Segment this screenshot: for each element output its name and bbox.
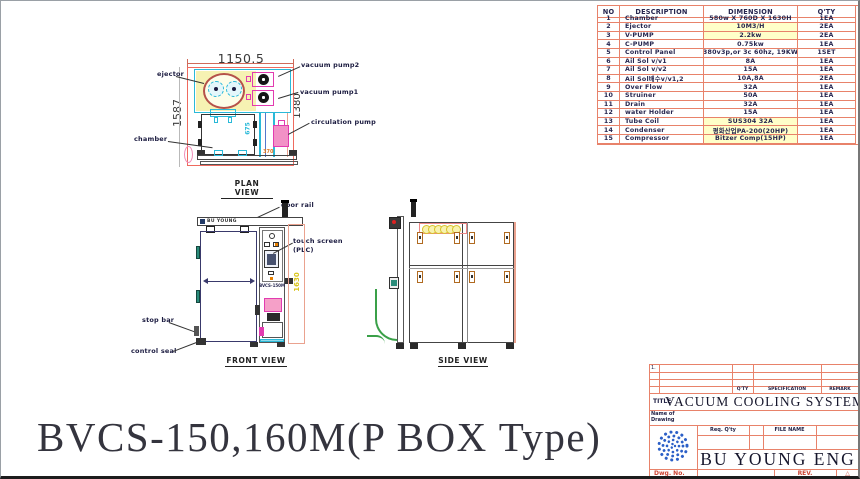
- cell-dimension: 8A: [704, 58, 798, 67]
- beacon-cap: [410, 199, 417, 202]
- pump-port: [246, 94, 251, 100]
- stop-bar-hardware: [194, 326, 199, 336]
- dim-tick: [187, 59, 188, 67]
- drawing-main-title: BVCS-150,160M(P BOX Type): [37, 413, 601, 461]
- cell-dimension: 32A: [704, 83, 798, 92]
- plan-dim-rail-label: 370: [263, 149, 273, 155]
- cell-no: 11: [598, 101, 620, 110]
- foot: [250, 342, 258, 347]
- cell-qty: 1EA: [798, 101, 856, 110]
- foot: [396, 343, 404, 349]
- grid-line: [659, 364, 660, 393]
- cell-dimension: 15A: [704, 109, 798, 118]
- panel-divider-h: [409, 268, 514, 269]
- cell-description: Ail Sol v/v1: [620, 58, 704, 67]
- cell-no: 8: [598, 75, 620, 84]
- cell-qty: 1EA: [798, 109, 856, 118]
- plan-dim-left-label: 1587: [171, 93, 183, 133]
- panel-hinge: [504, 232, 510, 244]
- plan-dim-inner-label: 675: [245, 119, 254, 139]
- junction-lamp: [392, 220, 396, 224]
- door-carriage: [214, 150, 223, 156]
- company-name: BU YOUNG ENG: [699, 449, 857, 470]
- cell-qty: 2EA: [798, 32, 856, 41]
- cell-description: water Holder: [620, 109, 704, 118]
- drain-hose: [375, 289, 397, 341]
- panel-hinge: [454, 271, 460, 283]
- label-control-seal: control seal: [131, 347, 177, 355]
- file-name-header: FILE NAME: [763, 427, 816, 433]
- cell-qty: 1EA: [798, 66, 856, 75]
- pipe-line: [259, 113, 261, 157]
- cell-qty: 1EA: [798, 126, 856, 135]
- dwg-no-label: Dwg. No.: [654, 470, 685, 477]
- switch-lamp: [275, 243, 278, 246]
- cell-no: 7: [598, 66, 620, 75]
- beacon-cap: [281, 200, 289, 203]
- cell-description: V-PUMP: [620, 32, 704, 41]
- arrow-head-left: [203, 278, 208, 284]
- pilot-lamp: [269, 233, 275, 239]
- cell-qty: 1EA: [798, 92, 856, 101]
- pole-connector-valve: [391, 280, 397, 286]
- spec-item-no: 1.: [651, 365, 656, 371]
- cell-dimension: 0.75kw: [704, 40, 798, 49]
- rotor-hub: [214, 87, 218, 91]
- leader-line: [169, 322, 195, 332]
- pump-stand: [262, 322, 283, 338]
- cell-description: Condenser: [620, 126, 704, 135]
- hose-loop: [184, 146, 193, 163]
- cell-qty: 1EA: [798, 135, 856, 144]
- cell-qty: 1EA: [798, 118, 856, 127]
- cell-description: Ail Sol v/v2: [620, 66, 704, 75]
- req-qty-header: Req. Q'ty: [697, 427, 749, 433]
- chamber-door: [200, 231, 257, 342]
- panel-hinge: [454, 232, 460, 244]
- panel-hinge: [417, 271, 423, 283]
- pump-base: [267, 313, 280, 321]
- cell-no: 13: [598, 118, 620, 127]
- vacuum-pump2-rotor: [258, 74, 269, 85]
- model-text: BVCS-150M: [257, 283, 287, 288]
- rev-label: REV.: [774, 470, 836, 477]
- cell-no: 15: [598, 135, 620, 144]
- warning-triangle-icon: △: [836, 470, 859, 477]
- cell-description: C-PUMP: [620, 40, 704, 49]
- cell-description: Compressor: [620, 135, 704, 144]
- cell-qty: 2EA: [798, 75, 856, 84]
- cell-no: 5: [598, 49, 620, 58]
- arrow-head-right: [250, 278, 255, 284]
- door-slide-arrow: [207, 281, 251, 282]
- plan-view-caption: PLAN VIEW: [221, 179, 273, 199]
- chamber-hinge: [253, 139, 257, 146]
- cell-dimension: 10M3/H: [704, 23, 798, 32]
- cell-description: Control Panel: [620, 49, 704, 58]
- panel-divider-v: [467, 222, 468, 343]
- spec-remark-header: REMARK: [821, 387, 859, 392]
- panel-hinge: [417, 232, 423, 244]
- label-chamber: chamber: [134, 135, 167, 143]
- cell-no: 14: [598, 126, 620, 135]
- cell-description: Over Flow: [620, 83, 704, 92]
- foot: [458, 343, 466, 349]
- cell-description: Tube Coil: [620, 118, 704, 127]
- chamber-hinge: [253, 121, 257, 128]
- beacon-lamp: [411, 201, 416, 217]
- buyoung-logo: [655, 428, 691, 464]
- parts-table: NO DESCRIPTION DIMENSION Q'TY 1 Chamber …: [597, 5, 860, 145]
- cell-description: Ejector: [620, 23, 704, 32]
- cell-dimension: SUS304 32A: [704, 118, 798, 127]
- touch-screen-display: [267, 254, 276, 265]
- cell-qty: 1EA: [798, 83, 856, 92]
- spec-header: SPECIFICATION: [753, 387, 821, 392]
- beacon-lamp: [282, 202, 288, 218]
- grid-line: [649, 372, 859, 373]
- panel-hinge: [504, 271, 510, 283]
- cell-description: Ail Sol배수v/v1,2: [620, 75, 704, 84]
- dim-line: [187, 63, 294, 64]
- panel-divider-v: [462, 222, 463, 343]
- panel-lamp: [270, 277, 273, 280]
- cell-no: 10: [598, 92, 620, 101]
- grid-line: [816, 425, 817, 449]
- circulation-pump-cap: [278, 120, 285, 126]
- pump-fitting: [259, 327, 264, 336]
- grid-line: [649, 425, 859, 426]
- door-carriage: [238, 150, 247, 156]
- bracket: [255, 305, 260, 315]
- leader-line: [173, 342, 198, 352]
- foot: [506, 343, 514, 349]
- drain-hose-tail: [367, 335, 385, 344]
- rail-end-block: [197, 150, 205, 155]
- cell-no: 6: [598, 58, 620, 67]
- name-of-drawing-label: Name of Drawing: [651, 412, 677, 423]
- grid-line: [749, 425, 750, 449]
- rail-end-block: [289, 150, 297, 155]
- front-dim-height-label: 1630: [293, 267, 303, 297]
- panel-divider-h: [409, 265, 514, 266]
- foot: [277, 342, 285, 347]
- circulation-pump-body: [273, 125, 289, 147]
- cell-no: 12: [598, 109, 620, 118]
- cell-dimension: 380v3p,or 3c 60hz, 19KW: [704, 49, 798, 58]
- cell-dimension: 10A,8A: [704, 75, 798, 84]
- cabinet-depth-line: [514, 222, 516, 343]
- cell-qty: 1EA: [798, 15, 856, 24]
- cell-description: Drain: [620, 101, 704, 110]
- cell-description: Chamber: [620, 15, 704, 24]
- cell-qty: 1EA: [798, 40, 856, 49]
- cell-dimension: 580w X 760D X 1630H: [704, 15, 798, 24]
- foot: [410, 343, 418, 349]
- panel-button: [268, 271, 274, 275]
- cell-dimension: 50A: [704, 92, 798, 101]
- door-rail-bar: [197, 155, 297, 160]
- grid-line: [697, 435, 859, 436]
- pump-motor: [264, 298, 282, 312]
- dim-tick: [293, 59, 294, 67]
- chamber-hinge: [198, 121, 202, 128]
- label-circulation-pump: circulation pump: [311, 118, 376, 126]
- drawing-title: VACUUM COOLING SYSTEM: [665, 394, 857, 410]
- cell-dimension: 32A: [704, 101, 798, 110]
- cell-dimension: Bitzer Comp(15HP): [704, 135, 798, 144]
- dim-line: [179, 67, 180, 167]
- panel-hinge: [469, 271, 475, 283]
- door-hinge: [196, 246, 200, 259]
- switch: [264, 242, 270, 247]
- cell-qty: 2EA: [798, 23, 856, 32]
- cell-description: Struiner: [620, 92, 704, 101]
- label-vacuum-pump1: vacuum pump1: [300, 88, 358, 96]
- panel-hinge: [469, 232, 475, 244]
- vacuum-pump1-rotor: [258, 92, 269, 103]
- cell-no: 9: [598, 83, 620, 92]
- brand-logo-chip: [200, 219, 205, 224]
- grid-line: [649, 410, 859, 411]
- cell-no: 4: [598, 40, 620, 49]
- pump-port: [246, 76, 251, 82]
- front-view-caption: FRONT VIEW: [225, 356, 287, 367]
- cell-no: 1: [598, 15, 620, 24]
- side-view-caption: SIDE VIEW: [438, 356, 488, 367]
- spec-qty-header: Q'TY: [732, 387, 753, 392]
- door-rail-bar: [200, 161, 298, 165]
- cell-no: 3: [598, 32, 620, 41]
- cell-dimension: 2.2kw: [704, 32, 798, 41]
- door-hinge: [196, 290, 200, 303]
- cell-qty: 1EA: [798, 58, 856, 67]
- rotor-hub: [232, 87, 236, 91]
- drawing-sheet: NO DESCRIPTION DIMENSION Q'TY 1 Chamber …: [0, 0, 860, 479]
- cell-qty: 1SET: [798, 49, 856, 58]
- cell-dimension: 평화산업PA-200(20HP): [704, 126, 798, 135]
- beam-brand-text: BU YOUNG: [207, 219, 237, 224]
- grid-line: [649, 379, 859, 380]
- cell-dimension: 15A: [704, 66, 798, 75]
- cell-no: 2: [598, 23, 620, 32]
- label-vacuum-pump2: vacuum pump2: [301, 61, 359, 69]
